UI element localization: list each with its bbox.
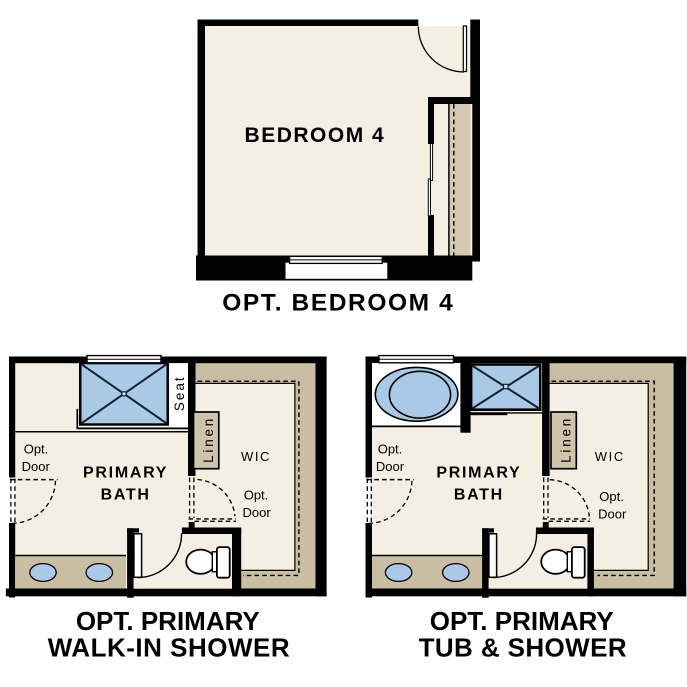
svg-text:WIC: WIC — [241, 449, 271, 464]
svg-text:WALK-IN SHOWER: WALK-IN SHOWER — [48, 633, 290, 663]
svg-text:BATH: BATH — [454, 486, 504, 503]
svg-text:Opt.: Opt. — [378, 441, 403, 456]
svg-text:BATH: BATH — [101, 486, 151, 503]
svg-text:Door: Door — [243, 505, 272, 520]
svg-text:OPT. BEDROOM 4: OPT. BEDROOM 4 — [222, 289, 454, 316]
svg-text:Seat: Seat — [172, 375, 187, 411]
svg-text:PRIMARY: PRIMARY — [436, 465, 521, 482]
svg-text:BEDROOM 4: BEDROOM 4 — [245, 124, 386, 147]
svg-text:Door: Door — [376, 459, 405, 474]
svg-text:WIC: WIC — [595, 449, 625, 464]
svg-text:Linen: Linen — [201, 416, 216, 463]
svg-text:Door: Door — [598, 507, 627, 522]
svg-text:Opt.: Opt. — [599, 489, 624, 504]
svg-text:Door: Door — [22, 459, 51, 474]
svg-text:Linen: Linen — [559, 416, 574, 463]
svg-text:Opt.: Opt. — [24, 441, 49, 456]
svg-text:Opt.: Opt. — [244, 488, 269, 503]
svg-text:PRIMARY: PRIMARY — [83, 465, 168, 482]
svg-text:TUB & SHOWER: TUB & SHOWER — [419, 633, 627, 663]
